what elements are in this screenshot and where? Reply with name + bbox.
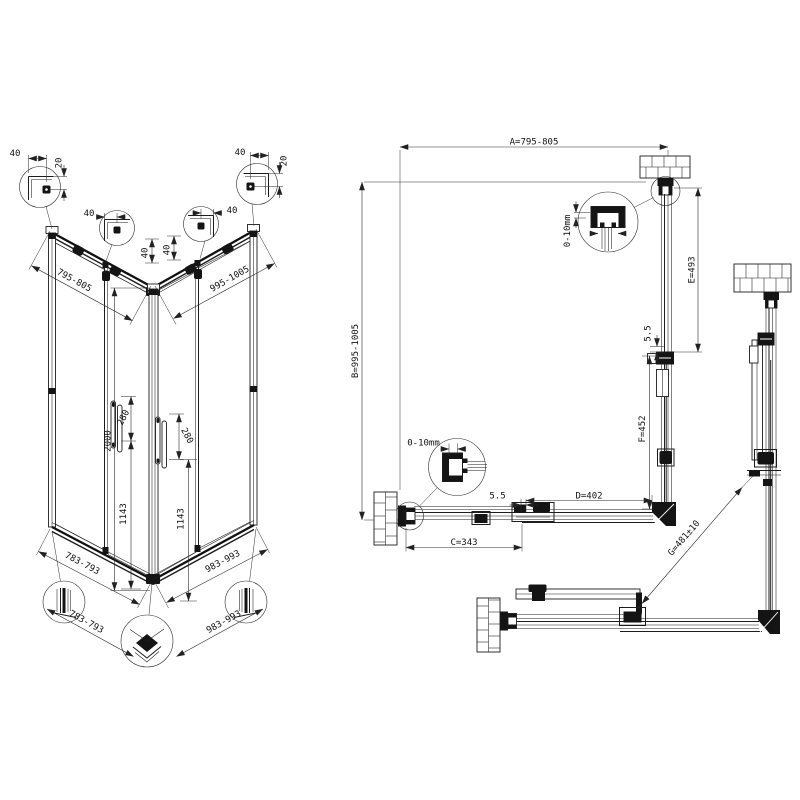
plan-bottom-rail: [398, 503, 655, 527]
drawing-canvas: 795-805 995-1005 2000 280 1143 280 1143 …: [0, 0, 800, 800]
dim-wall-adjust-bottom: 0-10mm: [407, 439, 440, 449]
plan-view: A=795-805 B=995-1005 0-10mm: [351, 138, 702, 552]
door-edge-cap: [763, 479, 772, 486]
wall-section-left: [477, 598, 500, 652]
dim-top-width-left: 795-805: [55, 268, 93, 295]
wall-profile-section: [398, 506, 406, 527]
detail-circle-wall-right: 0-10mm: [563, 192, 638, 252]
dim-plan-width: A=795-805: [510, 138, 559, 148]
detail-dim: 40: [227, 206, 238, 216]
detail-dim: 20: [55, 158, 65, 169]
dim-handle-clearance-left: 1143: [119, 503, 129, 525]
plan-right-rail: [648, 194, 675, 503]
roller-icon: [533, 503, 550, 513]
shower-enclosure-technical-drawing: 795-805 995-1005 2000 280 1143 280 1143 …: [0, 0, 800, 800]
wall-section-bottom-left: [374, 492, 397, 545]
dim-door-right: F=452: [638, 415, 648, 442]
roller-icon: [109, 264, 123, 277]
corner-bracket: [146, 574, 160, 584]
roller-icon: [758, 452, 775, 465]
detail-circle-bottom-right: [225, 529, 267, 623]
wall-section-top: [734, 264, 791, 292]
detail-dim: 40: [84, 209, 95, 219]
dim-gap-right: 5.5: [644, 325, 654, 341]
detail-dim: 40: [10, 149, 21, 159]
dim-handle-clearance-right: 1143: [177, 508, 187, 530]
dim-plan-depth: B=995-1005: [351, 324, 361, 378]
roller-icon: [529, 585, 547, 593]
dim-base-width-right: 983-993: [204, 549, 242, 575]
wall-section-top-right: [640, 156, 690, 178]
dim-door-bottom: D=402: [575, 492, 602, 502]
detail-circle-wall-bottom: 0-10mm: [407, 439, 487, 496]
panel-clamp: [475, 514, 488, 523]
isometric-view: 795-805 995-1005 2000 280 1143 280 1143 …: [10, 148, 290, 667]
panel-clamp: [624, 612, 642, 623]
detail-dim: 20: [280, 156, 290, 167]
dim-overall-height: 2000: [104, 430, 114, 452]
detail-dim: 40: [235, 148, 246, 158]
detail-dim: 40: [141, 248, 151, 259]
detail-circle-bottom-corner: [121, 583, 173, 667]
wall-profile-section: [658, 178, 674, 186]
wall-profile-section: [764, 292, 780, 300]
detail-dim: 40: [163, 245, 173, 256]
detail-circle-top-left: 40 20: [10, 149, 67, 229]
open-view-right-rail: [747, 308, 781, 611]
open-view-bottom-rail: [500, 585, 762, 632]
dim-handle-length-right: 280: [178, 426, 194, 445]
corner-detail-view: G=481±10: [477, 264, 791, 652]
detail-circle-top-right: 40 20: [235, 148, 290, 226]
roller-icon: [198, 223, 205, 230]
roller-icon: [114, 227, 121, 234]
roller-icon: [660, 451, 673, 464]
dim-profile-width-left: 783-793: [67, 609, 105, 636]
dim-profile-width-right: 983-993: [205, 609, 243, 636]
dim-fixed-panel-right: E=493: [688, 256, 698, 283]
door-edge-cap: [636, 593, 642, 614]
dim-wall-adjust-right: 0-10mm: [563, 215, 573, 248]
wall-profile-section: [500, 612, 508, 631]
dim-fixed-panel-bottom: C=343: [450, 538, 477, 548]
dim-gap-bottom: 5.5: [489, 492, 505, 502]
